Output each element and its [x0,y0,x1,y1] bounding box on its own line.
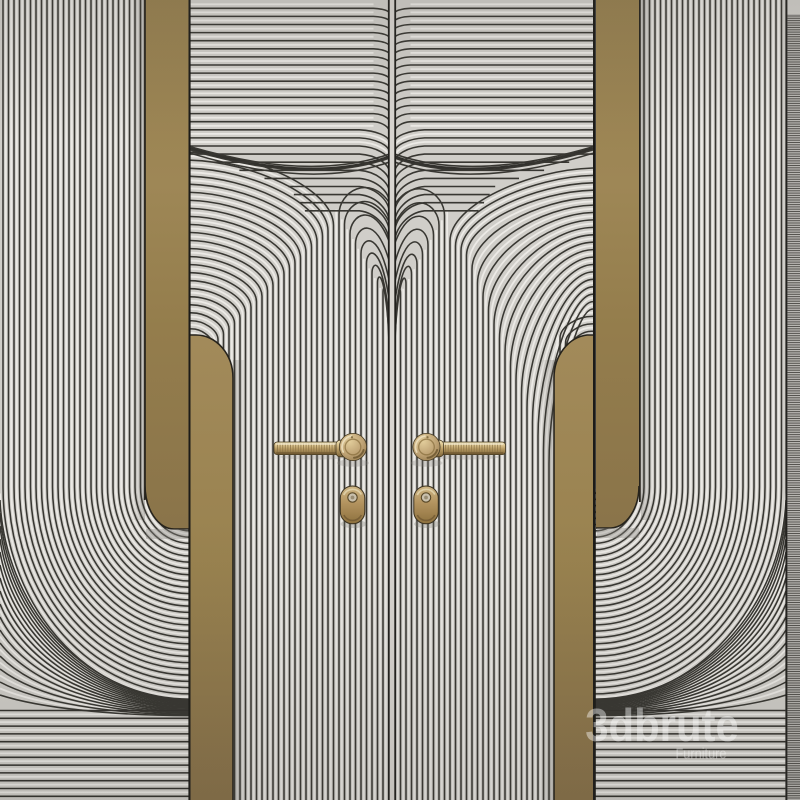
svg-text:Furniture: Furniture [676,744,727,761]
